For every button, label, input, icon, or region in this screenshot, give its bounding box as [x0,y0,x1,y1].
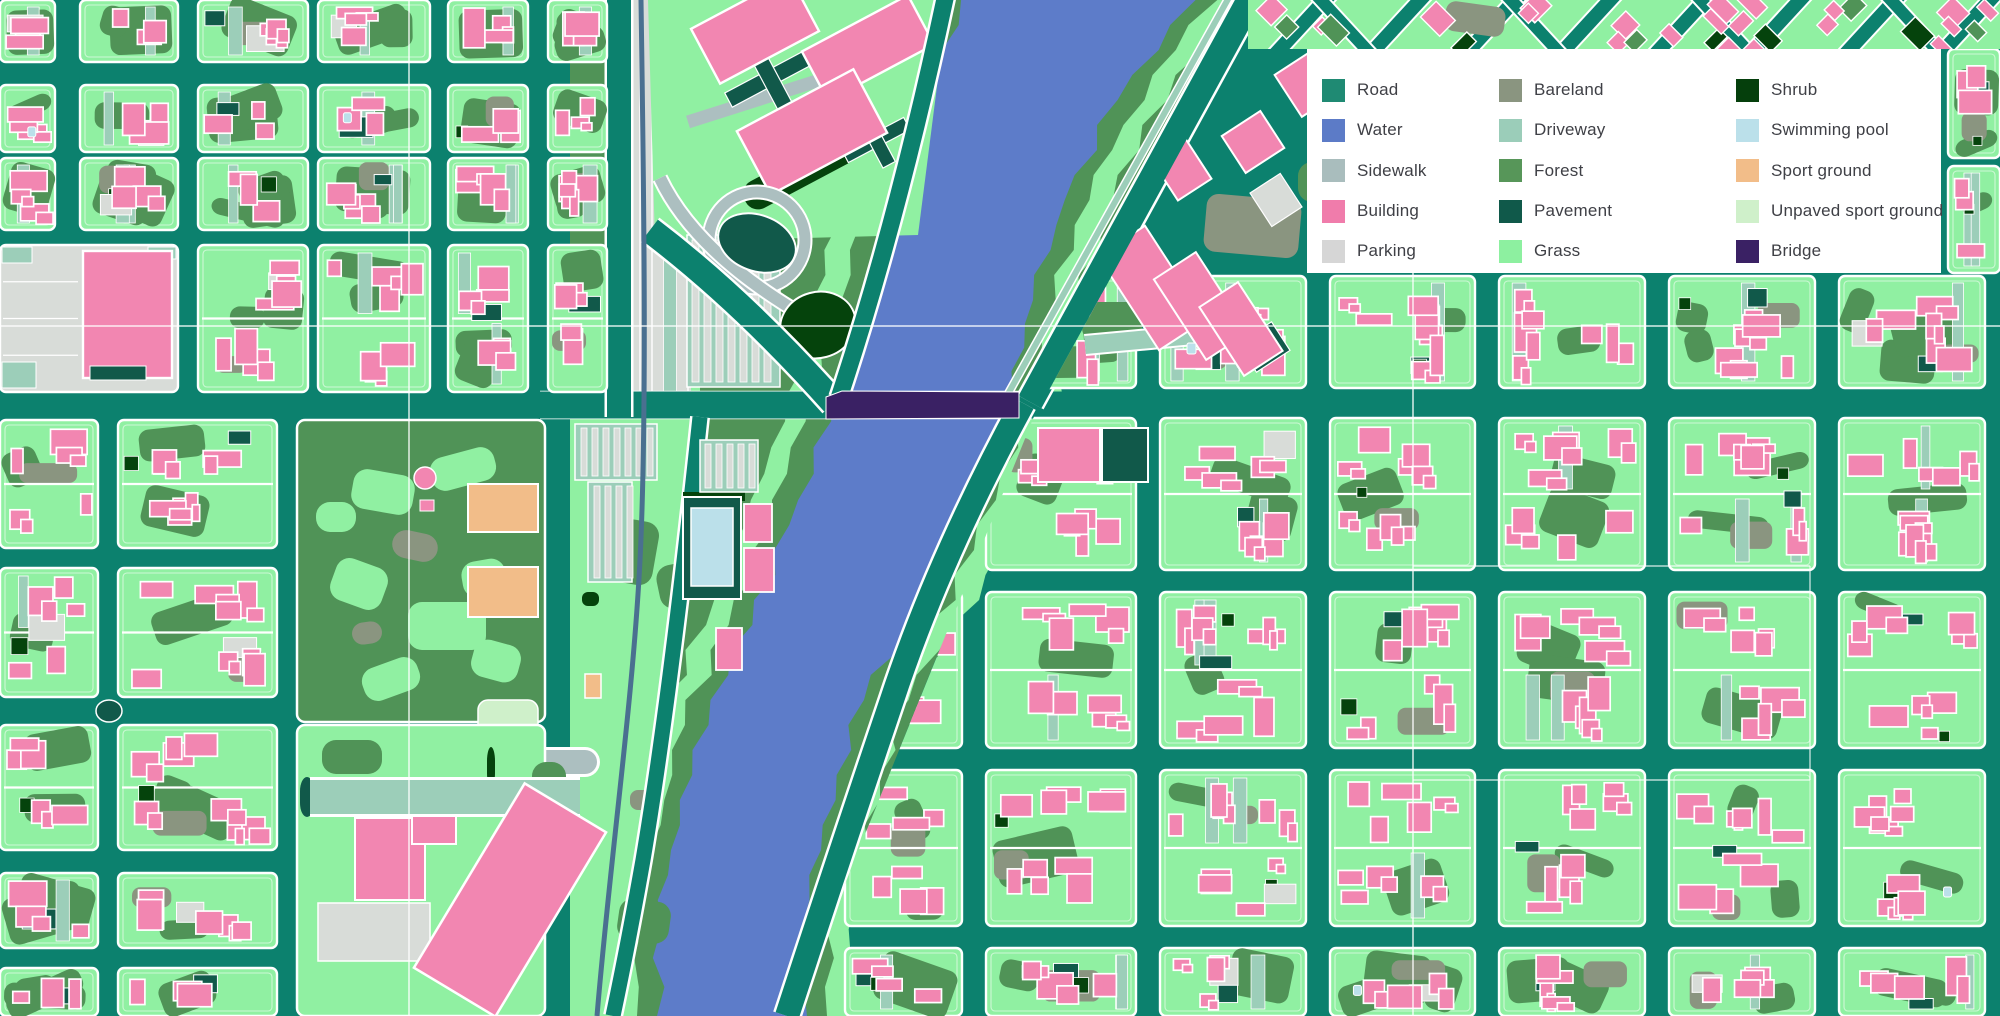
legend-item: Water [1322,110,1427,150]
city-block [1669,770,1815,926]
city-block [1160,770,1306,926]
city-block [1330,948,1475,1016]
legend-item: Road [1322,70,1427,110]
city-block [318,158,430,230]
city-block [1330,592,1475,748]
city-block [1499,948,1645,1016]
legend-column: ShrubSwimming poolSport groundUnpaved sp… [1736,70,1943,271]
city-block [548,0,609,63]
city-block [318,245,430,392]
city-block [1330,770,1475,926]
city-block [448,245,528,392]
city-block [0,724,98,850]
city-block [1499,276,1645,388]
city-block [0,158,58,230]
city-block [198,158,308,230]
city-block [986,770,1136,926]
legend-item: Forest [1499,151,1612,191]
city-block [80,85,178,152]
legend-item: Shrub [1736,70,1943,110]
city-block [1839,770,1985,926]
legend-item-label: Parking [1357,241,1416,261]
city-block [1837,276,1985,388]
city-block [1669,592,1815,748]
bridge-overpass [826,391,1019,419]
city-block [1330,418,1475,570]
legend-item: Sidewalk [1322,151,1427,191]
city-block [80,0,178,62]
legend-swatch-icon [1736,240,1759,263]
city-block [448,158,528,230]
legend-swatch-icon [1499,159,1522,182]
screenshot-stage: RoadWaterSidewalkBuildingParkingBareland… [0,0,2000,1016]
city-block [1160,418,1306,570]
legend-item: Building [1322,191,1427,231]
legend-item-label: Sidewalk [1357,161,1427,181]
city-block [198,245,308,392]
city-block [0,871,98,948]
legend-item-label: Shrub [1771,80,1817,100]
legend-item-label: Forest [1534,161,1583,181]
legend-item-label: Bridge [1771,241,1821,261]
city-block [318,0,430,62]
city-block [118,568,277,697]
city-block [1669,418,1815,570]
city-block [1839,418,1985,570]
city-block [1160,592,1306,748]
legend-swatch-icon [1499,119,1522,142]
city-block [0,568,98,697]
city-block [1499,592,1645,748]
city-block [1948,49,2000,160]
city-block [1499,770,1645,926]
legend-item-label: Road [1357,80,1398,100]
legend-swatch-icon [1322,240,1345,263]
legend-swatch-icon [1322,159,1345,182]
legend-swatch-icon [1499,79,1522,102]
legend-swatch-icon [1736,119,1759,142]
city-block [1948,166,2000,273]
city-block [198,0,308,62]
legend-item-label: Driveway [1534,120,1606,140]
city-block [80,158,178,230]
city-block [1499,418,1645,570]
legend-swatch-icon [1322,119,1345,142]
city-block [548,85,610,152]
city-block [118,420,277,548]
legend-swatch-icon [1322,200,1345,223]
city-block [1839,589,1985,748]
city-block [548,158,608,230]
city-block [0,966,98,1016]
legend-item-label: Swimming pool [1771,120,1889,140]
city-block [0,420,98,548]
legend-item-label: Water [1357,120,1403,140]
city-block [448,85,528,152]
city-block [0,0,55,62]
legend-item-label: Bareland [1534,80,1604,100]
legend-item-label: Sport ground [1771,161,1872,181]
legend-item-label: Pavement [1534,201,1612,221]
city-block [318,85,430,152]
city-block [118,968,277,1016]
legend-swatch-icon [1736,200,1759,223]
legend-item: Bridge [1736,231,1943,271]
legend-swatch-icon [1499,200,1522,223]
legend-panel: RoadWaterSidewalkBuildingParkingBareland… [1307,49,1941,273]
legend-item-label: Unpaved sport ground [1771,201,1943,221]
legend-swatch-icon [1322,79,1345,102]
city-block [986,948,1136,1016]
city-block [118,725,277,850]
legend-item: Bareland [1499,70,1612,110]
city-block [548,245,607,392]
legend-swatch-icon [1736,159,1759,182]
legend-item: Parking [1322,231,1427,271]
legend-swatch-icon [1499,240,1522,263]
city-block [1839,948,1985,1016]
city-block [118,873,277,948]
city-block [986,592,1136,748]
city-block [1669,948,1815,1016]
legend-column: BarelandDrivewayForestPavementGrass [1499,70,1612,271]
city-block [1669,276,1815,388]
city-block [448,0,528,62]
legend-swatch-icon [1736,79,1759,102]
legend-item: Sport ground [1736,151,1943,191]
legend-item: Swimming pool [1736,110,1943,150]
city-block [0,85,55,152]
legend-item: Grass [1499,231,1612,271]
legend-item: Driveway [1499,110,1612,150]
legend-column: RoadWaterSidewalkBuildingParking [1322,70,1427,271]
city-block [1160,946,1306,1016]
legend-item-label: Grass [1534,241,1580,261]
legend-item: Unpaved sport ground [1736,191,1943,231]
city-block [1330,276,1475,388]
city-block [198,80,308,152]
legend-item-label: Building [1357,201,1419,221]
city-block [845,948,962,1016]
legend-item: Pavement [1499,191,1612,231]
